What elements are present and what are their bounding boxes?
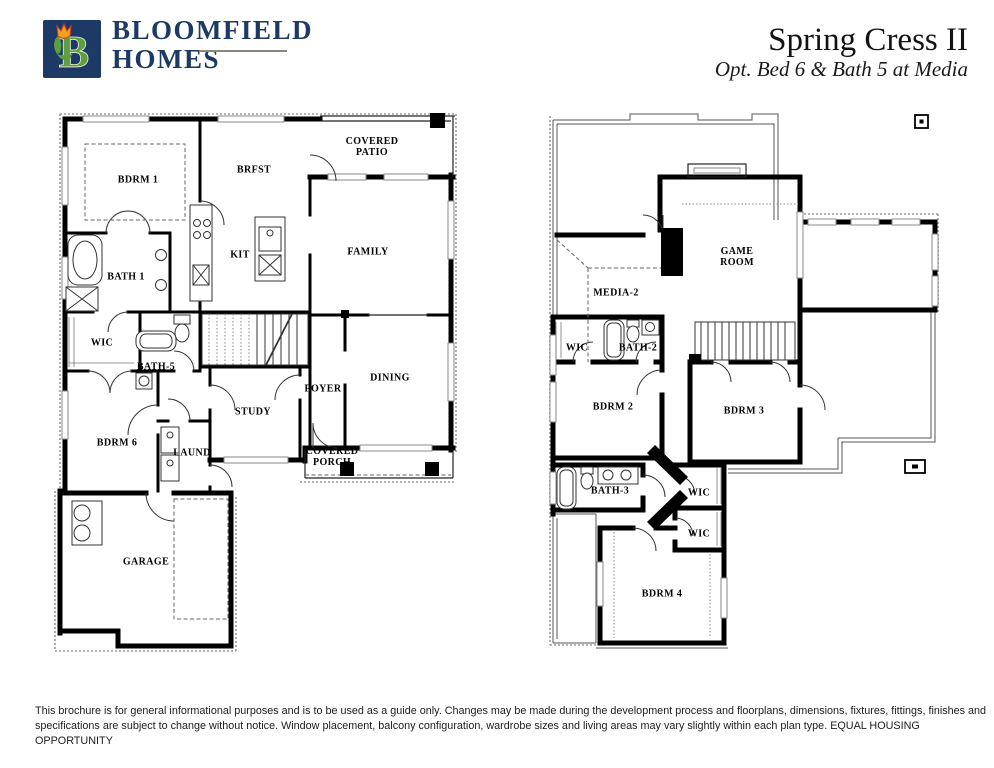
room-label-bath-1: BATH 1: [107, 272, 145, 283]
plan-subtitle: Opt. Bed 6 & Bath 5 at Media: [715, 57, 968, 82]
room-label-bdrm-3: BDRM 3: [724, 406, 764, 417]
room-label-media-2: MEDIA-2: [593, 288, 639, 299]
room-label-game-room: GAME ROOM: [720, 246, 754, 268]
brand-line1: BLOOMFIELD: [112, 16, 313, 45]
room-label-covered-porch: COVERED PORCH: [306, 446, 359, 468]
room-label-bath-3: BATH-3: [591, 486, 629, 497]
room-label-wic-b: WIC: [688, 488, 710, 499]
brochure-page: { "header": { "brand": { "line1": "BLOOM…: [0, 0, 994, 768]
room-label-bdrm-2: BDRM 2: [593, 402, 633, 413]
plan-title: Spring Cress II: [768, 22, 968, 58]
bloomfield-logo-icon: B: [43, 20, 101, 78]
room-label-bdrm-4: BDRM 4: [642, 589, 682, 600]
room-label-family: FAMILY: [347, 247, 388, 258]
room-label-wic-c: WIC: [688, 529, 710, 540]
room-label-laund: LAUND: [173, 448, 211, 459]
room-label-kit: KIT: [230, 250, 250, 261]
second-floor-plan: [548, 110, 948, 655]
room-label-bath-5: BATH-5: [137, 362, 175, 373]
brand-name: BLOOMFIELD HOMES: [112, 16, 313, 74]
room-label-bath-2: BATH-2: [619, 343, 657, 354]
room-label-foyer: FOYER: [305, 384, 342, 395]
room-label-brfst: BRFST: [237, 165, 271, 176]
room-label-garage: GARAGE: [123, 557, 169, 568]
room-label-bdrm-1: BDRM 1: [118, 175, 158, 186]
room-label-wic-1f: WIC: [91, 338, 113, 349]
bloomfield-logo: B: [43, 20, 101, 78]
room-label-dining: DINING: [370, 373, 410, 384]
room-label-covered-patio: COVERED PATIO: [346, 136, 399, 158]
room-label-wic-a: WIC: [566, 343, 588, 354]
room-label-bdrm-6: BDRM 6: [97, 438, 137, 449]
room-label-study: STUDY: [235, 407, 271, 418]
disclaimer-text: This brochure is for general information…: [35, 704, 987, 749]
brand-rule: [199, 50, 287, 52]
